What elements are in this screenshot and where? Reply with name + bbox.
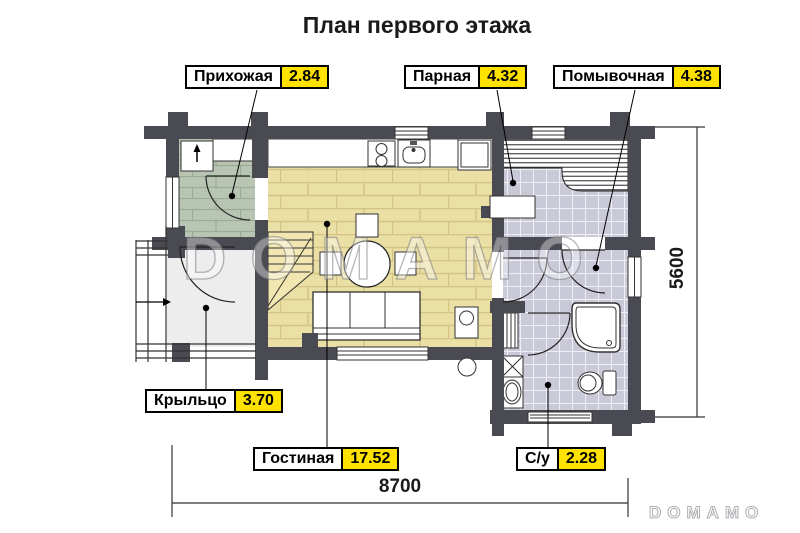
kitchen-stove bbox=[368, 141, 395, 167]
cabinet bbox=[502, 356, 523, 377]
window bbox=[532, 127, 565, 139]
door-mat bbox=[528, 412, 592, 422]
room-name: С/у bbox=[516, 447, 559, 471]
room-name: Прихожая bbox=[185, 65, 282, 89]
room-label-steam-room: Парная 4.32 bbox=[404, 65, 527, 89]
window bbox=[337, 347, 428, 360]
kitchen-sink bbox=[398, 140, 430, 167]
dimension-width: 8700 bbox=[330, 476, 470, 498]
sauna-heater bbox=[490, 196, 535, 218]
floor-plan-page: План первого этажа Прихожая 2.84 Парная … bbox=[0, 0, 800, 533]
room-area: 4.32 bbox=[480, 65, 527, 89]
room-name: Помывочная bbox=[553, 65, 674, 89]
room-area: 17.52 bbox=[343, 447, 399, 471]
watermark-small: DOMAMO bbox=[649, 503, 764, 523]
hallway-floor bbox=[179, 139, 255, 237]
window bbox=[395, 127, 428, 139]
steam-room-floor bbox=[503, 139, 628, 237]
room-name: Парная bbox=[404, 65, 480, 89]
room-label-washing-room: Помывочная 4.38 bbox=[553, 65, 721, 89]
room-area: 4.38 bbox=[674, 65, 721, 89]
window bbox=[628, 257, 641, 297]
water-heater bbox=[455, 307, 478, 338]
dimension-height: 5600 bbox=[664, 235, 692, 301]
room-name: Гостиная bbox=[253, 447, 343, 471]
watermark-large: DOMAMO bbox=[183, 224, 607, 293]
fridge bbox=[458, 140, 491, 170]
toilet bbox=[578, 371, 616, 395]
room-area: 2.28 bbox=[559, 447, 606, 471]
room-label-porch: Крыльцо 3.70 bbox=[145, 389, 283, 413]
room-label-living-room: Гостиная 17.52 bbox=[253, 447, 399, 471]
washbasin bbox=[502, 377, 523, 408]
room-label-hallway: Прихожая 2.84 bbox=[185, 65, 329, 89]
room-area: 3.70 bbox=[236, 389, 283, 413]
sofa bbox=[313, 292, 420, 340]
chimney bbox=[458, 358, 476, 376]
window bbox=[166, 177, 179, 228]
shower bbox=[572, 303, 620, 352]
room-area: 2.84 bbox=[282, 65, 329, 89]
room-name: Крыльцо bbox=[145, 389, 236, 413]
room-label-bathroom: С/у 2.28 bbox=[516, 447, 606, 471]
washing-bench bbox=[503, 313, 518, 348]
page-title: План первого этажа bbox=[0, 12, 800, 39]
